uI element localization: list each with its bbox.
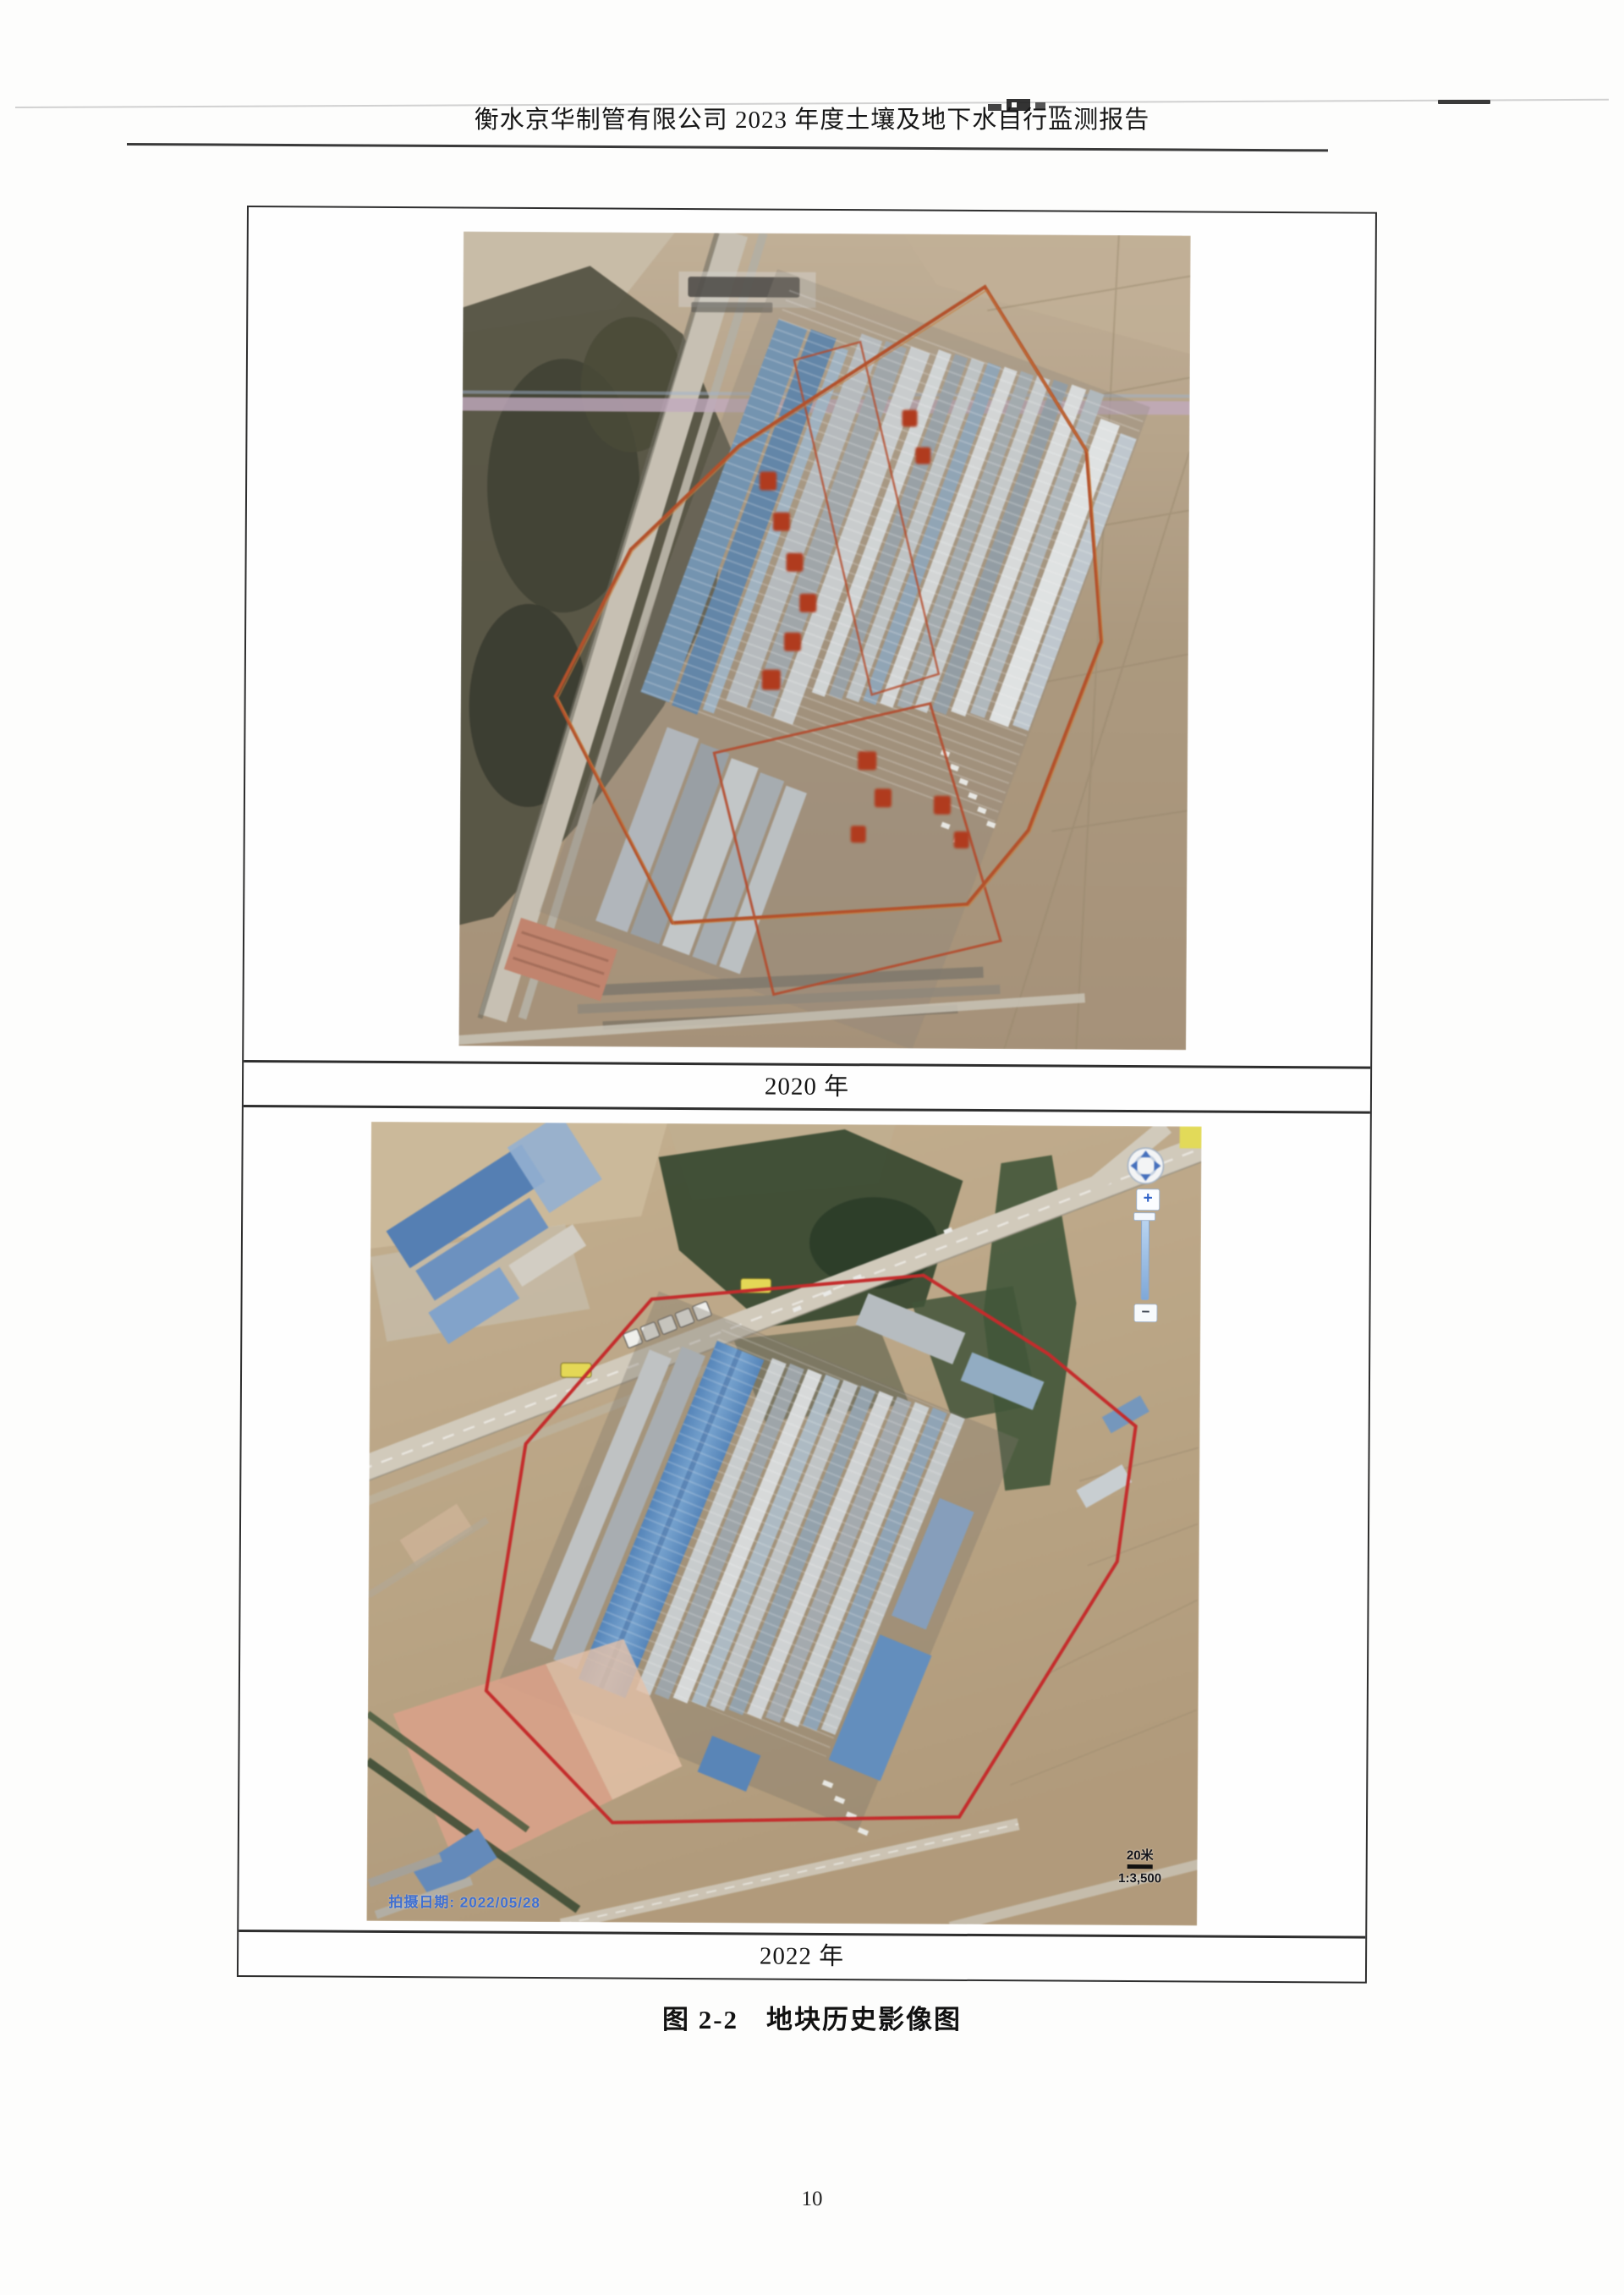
map-pan-control — [1126, 1146, 1165, 1185]
scale-ratio-label: 1:3,500 — [1118, 1871, 1161, 1886]
satellite-2022-art — [366, 1122, 1201, 1926]
scale-distance-label: 20米 — [1127, 1848, 1154, 1863]
caption-2022: 2022 年 — [239, 1932, 1365, 1982]
image-cell-2022: + − 20米 1:3,500 拍摄日期: 2022/05/28 — [239, 1107, 1370, 1939]
map-scale: 20米 1:3,500 — [1101, 1848, 1179, 1886]
zoom-slider-track — [1141, 1214, 1150, 1300]
zoom-out-button: − — [1133, 1304, 1157, 1322]
report-page: 衡水京华制管有限公司 2023 年度土壤及地下水自行监测报告 — [0, 0, 1624, 2295]
image-cell-2020 — [244, 207, 1375, 1069]
scale-bar — [1127, 1864, 1153, 1869]
header-rule-line — [127, 143, 1328, 151]
page-number: 10 — [0, 2188, 1624, 2211]
page-header-title: 衡水京华制管有限公司 2023 年度土壤及地下水自行监测报告 — [0, 100, 1624, 135]
satellite-image-2020 — [458, 231, 1191, 1050]
satellite-image-2022: + − 20米 1:3,500 拍摄日期: 2022/05/28 — [366, 1122, 1201, 1926]
figure-table: 2020 年 — [237, 206, 1377, 1984]
imagery-date-label: 拍摄日期: 2022/05/28 — [388, 1890, 540, 1912]
corner-highlight — [1180, 1126, 1202, 1148]
zoom-slider-handle — [1133, 1212, 1155, 1221]
satellite-2020-art — [458, 231, 1191, 1050]
zoom-in-button: + — [1136, 1189, 1160, 1211]
caption-2020: 2020 年 — [244, 1062, 1370, 1114]
figure-title: 图 2-2 地块历史影像图 — [0, 1998, 1624, 2036]
